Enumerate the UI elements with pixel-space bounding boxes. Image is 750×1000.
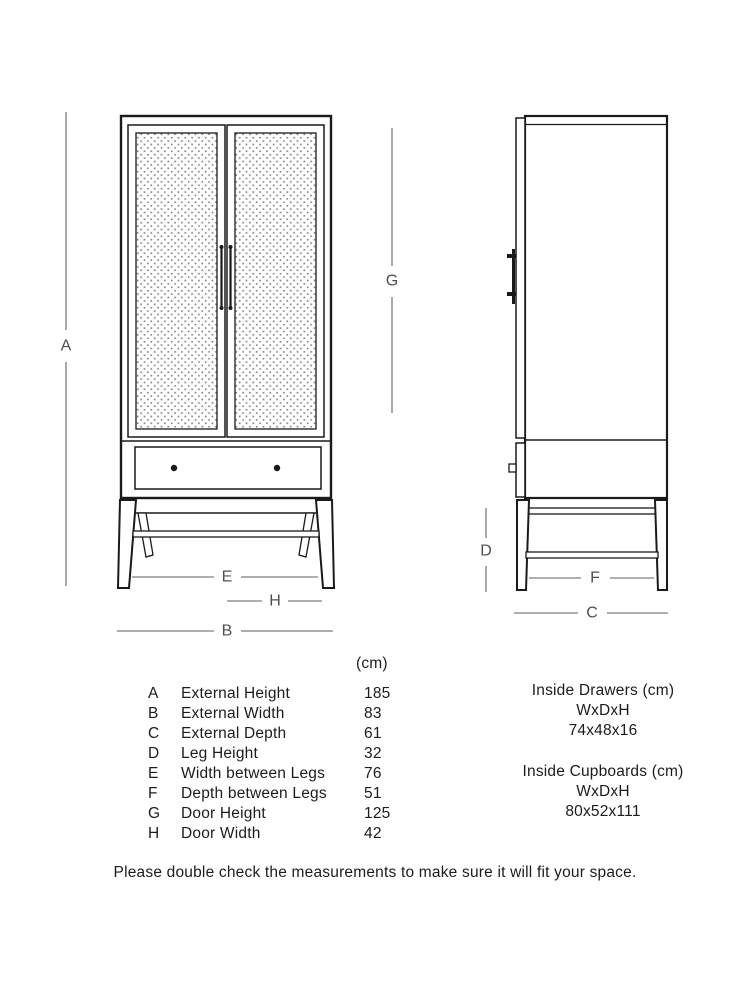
inside-dimensions-panel: Inside Drawers (cm) WxDxH 74x48x16 Insid… <box>493 681 713 822</box>
front-right-leg <box>316 500 334 588</box>
front-left-leg <box>118 500 136 588</box>
row-value: 125 <box>364 804 404 824</box>
row-value: 51 <box>364 784 404 804</box>
drawer-front <box>135 447 321 489</box>
side-stretcher <box>526 552 658 558</box>
side-door-profile <box>516 118 525 438</box>
row-letter: D <box>148 744 181 764</box>
row-value: 32 <box>364 744 404 764</box>
dimension-label-h: H <box>269 593 281 610</box>
right-cane-panel <box>235 133 316 429</box>
drawer-knob-right <box>274 465 280 471</box>
dimension-label-e: E <box>222 569 233 586</box>
dimension-label-f: F <box>590 570 600 587</box>
row-label: External Width <box>181 704 364 724</box>
measurements-table-header: (cm) <box>148 654 404 674</box>
dimension-label-d: D <box>480 543 492 560</box>
row-label: Door Height <box>181 804 364 824</box>
table-row: C External Depth 61 <box>148 724 404 744</box>
front-stretcher <box>133 531 319 537</box>
table-row: E Width between Legs 76 <box>148 764 404 784</box>
row-letter: E <box>148 764 181 784</box>
dimension-label-a: A <box>61 338 72 355</box>
inside-drawers-value: 74x48x16 <box>493 721 713 741</box>
side-rail <box>529 508 655 514</box>
row-letter: H <box>148 824 181 844</box>
row-value: 61 <box>364 724 404 744</box>
side-drawer-profile <box>516 443 525 497</box>
inside-drawers-block: Inside Drawers (cm) WxDxH 74x48x16 <box>493 681 713 741</box>
furniture-drawing: A G E H B D F C <box>0 0 750 660</box>
side-door-handle <box>507 249 516 304</box>
inside-cupboards-axes: WxDxH <box>493 782 713 802</box>
table-row: H Door Width 42 <box>148 824 404 844</box>
side-right-leg <box>655 500 667 590</box>
inside-drawers-axes: WxDxH <box>493 701 713 721</box>
table-row: F Depth between Legs 51 <box>148 784 404 804</box>
dimension-label-b: B <box>222 623 233 640</box>
left-cane-panel <box>136 133 217 429</box>
inside-drawers-title: Inside Drawers (cm) <box>493 681 713 701</box>
measurements-table: (cm) A External Height 185 B External Wi… <box>148 654 404 844</box>
row-letter: A <box>148 684 181 704</box>
row-letter: C <box>148 724 181 744</box>
dimension-label-c: C <box>586 605 598 622</box>
row-value: 76 <box>364 764 404 784</box>
unit-header: (cm) <box>356 654 404 674</box>
row-label: External Depth <box>181 724 364 744</box>
inside-cupboards-block: Inside Cupboards (cm) WxDxH 80x52x111 <box>493 762 713 822</box>
table-row: A External Height 185 <box>148 684 404 704</box>
row-label: Leg Height <box>181 744 364 764</box>
row-value: 42 <box>364 824 404 844</box>
side-view <box>507 116 667 590</box>
drawer-knob-left <box>171 465 177 471</box>
row-label: Door Width <box>181 824 364 844</box>
row-label: Depth between Legs <box>181 784 364 804</box>
dimension-label-g: G <box>386 273 398 290</box>
side-drawer-pull <box>509 464 516 472</box>
table-row: B External Width 83 <box>148 704 404 724</box>
row-letter: B <box>148 704 181 724</box>
front-view <box>118 116 334 588</box>
inside-cupboards-value: 80x52x111 <box>493 802 713 822</box>
row-value: 185 <box>364 684 404 704</box>
side-left-leg <box>517 500 529 590</box>
measurement-diagram-page: A G E H B D F C (cm) A External Height 1… <box>0 0 750 1000</box>
row-letter: G <box>148 804 181 824</box>
table-row: D Leg Height 32 <box>148 744 404 764</box>
row-value: 83 <box>364 704 404 724</box>
inside-cupboards-title: Inside Cupboards (cm) <box>493 762 713 782</box>
footer-note: Please double check the measurements to … <box>0 864 750 882</box>
row-letter: F <box>148 784 181 804</box>
row-label: External Height <box>181 684 364 704</box>
table-row: G Door Height 125 <box>148 804 404 824</box>
row-label: Width between Legs <box>181 764 364 784</box>
